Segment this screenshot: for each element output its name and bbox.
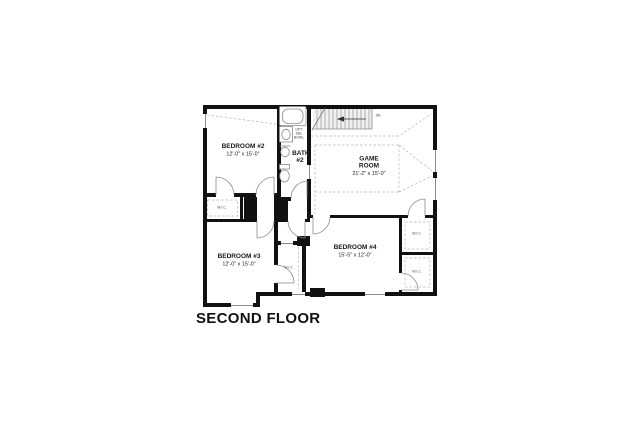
wall-segment <box>297 236 310 246</box>
wall-segment <box>203 128 207 307</box>
wall-segment <box>385 292 437 296</box>
window <box>365 292 385 296</box>
wall-segment <box>277 109 281 197</box>
room-dimensions: 15'-5" x 12'-0" <box>334 251 377 258</box>
floor-plan-page: { "floor_plan": { "title": "SECOND FLOOR… <box>0 0 640 426</box>
wall-segment <box>399 252 433 255</box>
window <box>203 114 207 128</box>
bedroom2-dashed-line <box>207 115 276 124</box>
wall-segment <box>274 283 278 296</box>
window <box>433 150 437 172</box>
room-label-bedroom2: BEDROOM #2 12'-0" x 15'-0" <box>222 143 265 157</box>
door-arc <box>313 217 330 234</box>
window <box>433 178 437 200</box>
door-arc <box>291 181 307 198</box>
room-label-bath2: BATH #2 <box>292 150 308 164</box>
wall-segment <box>399 218 402 273</box>
stairs-down-label: DN <box>376 114 381 117</box>
wall-segment <box>307 215 313 218</box>
wall-segment <box>302 246 306 292</box>
wall-segment <box>244 197 257 219</box>
closet-label: W.I.C. <box>412 232 421 235</box>
vanity-sink-icon <box>280 127 293 143</box>
door-arc <box>216 177 234 195</box>
wall-segment <box>433 200 437 296</box>
wall-segment <box>307 179 311 215</box>
staircase <box>312 108 372 130</box>
wall-segment <box>330 215 408 218</box>
bath-fixtures <box>280 107 307 183</box>
wall-segment <box>207 193 216 197</box>
wall-segment <box>274 197 288 219</box>
plan-title: SECOND FLOOR <box>196 310 320 327</box>
plan-linework <box>203 105 437 308</box>
floor-plan: BEDROOM #2 12'-0" x 15'-0" BATH #2 GAME … <box>203 105 437 308</box>
wall-segment <box>240 197 243 219</box>
room-name: BEDROOM #2 <box>222 143 265 150</box>
closet-label: W.I.C. <box>217 206 226 209</box>
room-dimensions: 12'-0" x 15'-0" <box>222 150 265 157</box>
door-arc <box>408 199 425 216</box>
window <box>292 292 305 296</box>
toilet-icon <box>280 165 290 183</box>
wall-opening <box>281 241 293 245</box>
window <box>231 303 253 307</box>
room-label-bedroom3: BEDROOM #3 12'-0" x 15'-0" <box>218 253 261 267</box>
room-dimensions: 12'-0" x 15'-0" <box>218 260 261 267</box>
closet-label: W.I.C. <box>412 270 421 273</box>
wall-segment <box>399 290 402 296</box>
room-name: BEDROOM #3 <box>218 253 261 260</box>
wall-segment <box>433 109 437 150</box>
bathtub-icon <box>280 107 307 126</box>
wall-segment <box>203 219 257 222</box>
bath-option-note: OPT DBL BOWL <box>293 128 305 140</box>
room-dimensions: 21'-2" x 15'-0" <box>352 170 385 177</box>
room-label-bedroom4: BEDROOM #4 15'-5" x 12'-0" <box>334 244 377 258</box>
door-arc <box>257 221 274 238</box>
stair-direction-arrow <box>337 116 366 121</box>
wall-segment <box>425 215 433 218</box>
wall-opening <box>307 165 311 179</box>
closet-label: W.I.C. <box>284 266 293 269</box>
wall-segment <box>288 197 291 201</box>
sink-icon <box>280 146 291 157</box>
wall-segment <box>203 303 231 307</box>
wall-segment <box>310 288 325 297</box>
wall-segment <box>325 292 365 296</box>
room-label-game-room: GAME ROOM 21'-2" x 15'-0" <box>352 156 385 177</box>
wall-segment <box>203 105 437 109</box>
room-name: GAME ROOM <box>359 156 379 170</box>
stair-break-line <box>312 108 325 130</box>
door-arc <box>401 273 418 290</box>
door-arc <box>256 177 274 195</box>
room-name: BATH #2 <box>292 150 308 164</box>
room-name: BEDROOM #4 <box>334 244 377 251</box>
